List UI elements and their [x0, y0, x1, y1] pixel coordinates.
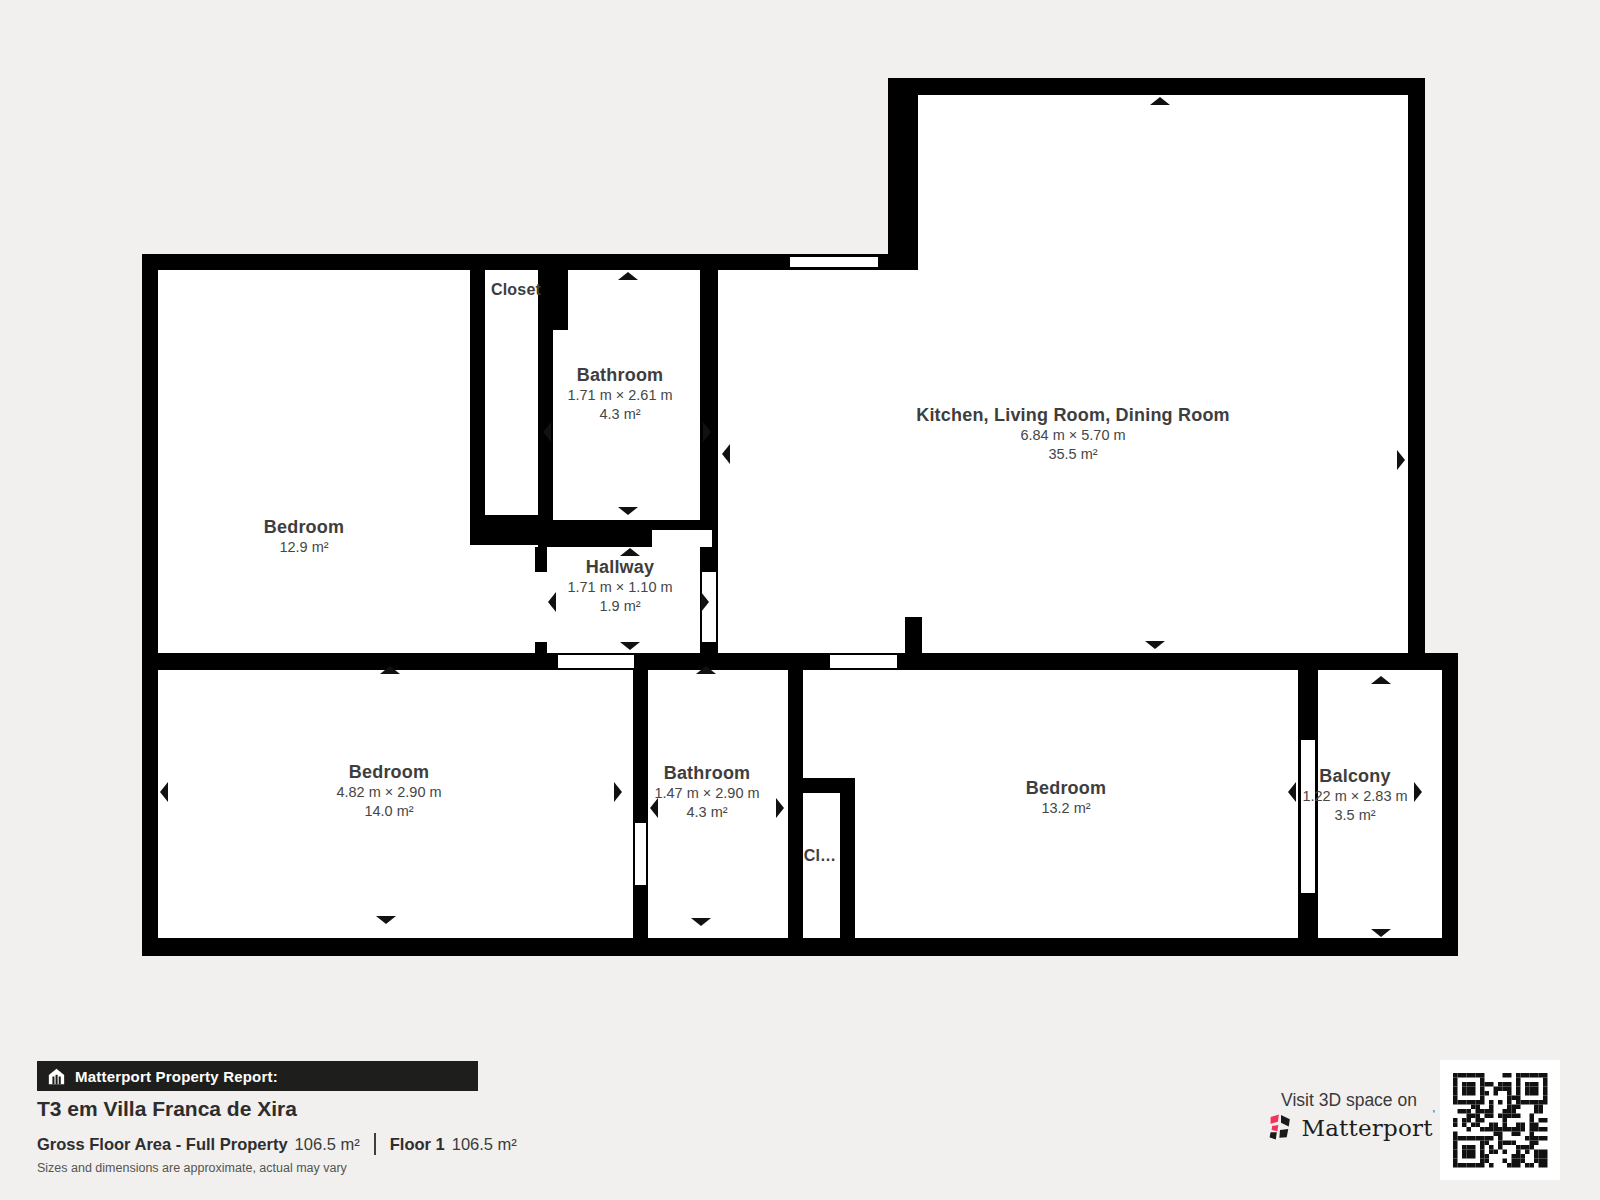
door-hallway-bathroom	[652, 530, 712, 547]
property-report-page: Bedroom 12.9 m² Closet Bathroom 1.71 m ×…	[0, 0, 1600, 1200]
room-label-bedroom-topleft: Bedroom 12.9 m²	[264, 517, 344, 556]
room-closet-top	[485, 270, 538, 515]
disclaimer-text: Sizes and dimensions are approximate, ac…	[37, 1161, 347, 1175]
floor-plan	[0, 0, 1600, 1200]
property-title: T3 em Villa Franca de Xira	[37, 1097, 297, 1121]
room-label-kitchen-living-dining: Kitchen, Living Room, Dining Room 6.84 m…	[916, 405, 1230, 463]
area-info-line: Gross Floor Area - Full Property 106.5 m…	[37, 1133, 517, 1155]
door-hallway-south	[558, 655, 634, 668]
room-bedroom-topleft	[158, 270, 470, 653]
matterport-logo: Matterport'	[1266, 1114, 1435, 1141]
room-label-bathroom-bottom: Bathroom 1.47 m × 2.90 m 4.3 m²	[654, 763, 759, 821]
room-label-closet-small: Cl…	[804, 845, 837, 866]
matterport-wordmark: Matterport'	[1301, 1115, 1435, 1141]
room-label-hallway: Hallway 1.71 m × 1.10 m 1.9 m²	[567, 557, 672, 615]
gross-floor-area-value: 106.5 m²	[295, 1135, 360, 1154]
door-kitchen-bedroom	[830, 655, 897, 668]
house-icon	[48, 1068, 65, 1085]
floor-value: 106.5 m²	[452, 1135, 517, 1154]
floor-label: Floor 1	[390, 1135, 445, 1154]
room-label-bedroom-bottomright: Bedroom 13.2 m²	[1026, 778, 1106, 817]
door-bedroom-bathroom	[635, 823, 646, 885]
matterport-pinwheel-icon	[1266, 1114, 1293, 1141]
gross-floor-area-label: Gross Floor Area - Full Property	[37, 1135, 288, 1154]
window-top	[790, 257, 878, 267]
room-label-closet: Closet	[491, 279, 541, 300]
report-bar: Matterport Property Report:	[37, 1061, 478, 1091]
room-bedroom-bottomright-upper	[803, 670, 1298, 778]
visit-3d-text: Visit 3D space on	[1281, 1090, 1417, 1111]
qr-code	[1440, 1060, 1560, 1180]
room-label-bathroom-top: Bathroom 1.71 m × 2.61 m 4.3 m²	[567, 365, 672, 423]
room-label-bedroom-bottomleft: Bedroom 4.82 m × 2.90 m 14.0 m²	[336, 762, 441, 820]
room-label-balcony: Balcony 1.22 m × 2.83 m 3.5 m²	[1302, 766, 1407, 824]
trademark-mark: '	[1433, 1109, 1436, 1119]
report-bar-label: Matterport Property Report:	[75, 1068, 278, 1085]
info-divider	[374, 1133, 376, 1155]
room-kitchen-upper	[918, 95, 1408, 270]
door-hallway-bedroom	[535, 572, 547, 642]
